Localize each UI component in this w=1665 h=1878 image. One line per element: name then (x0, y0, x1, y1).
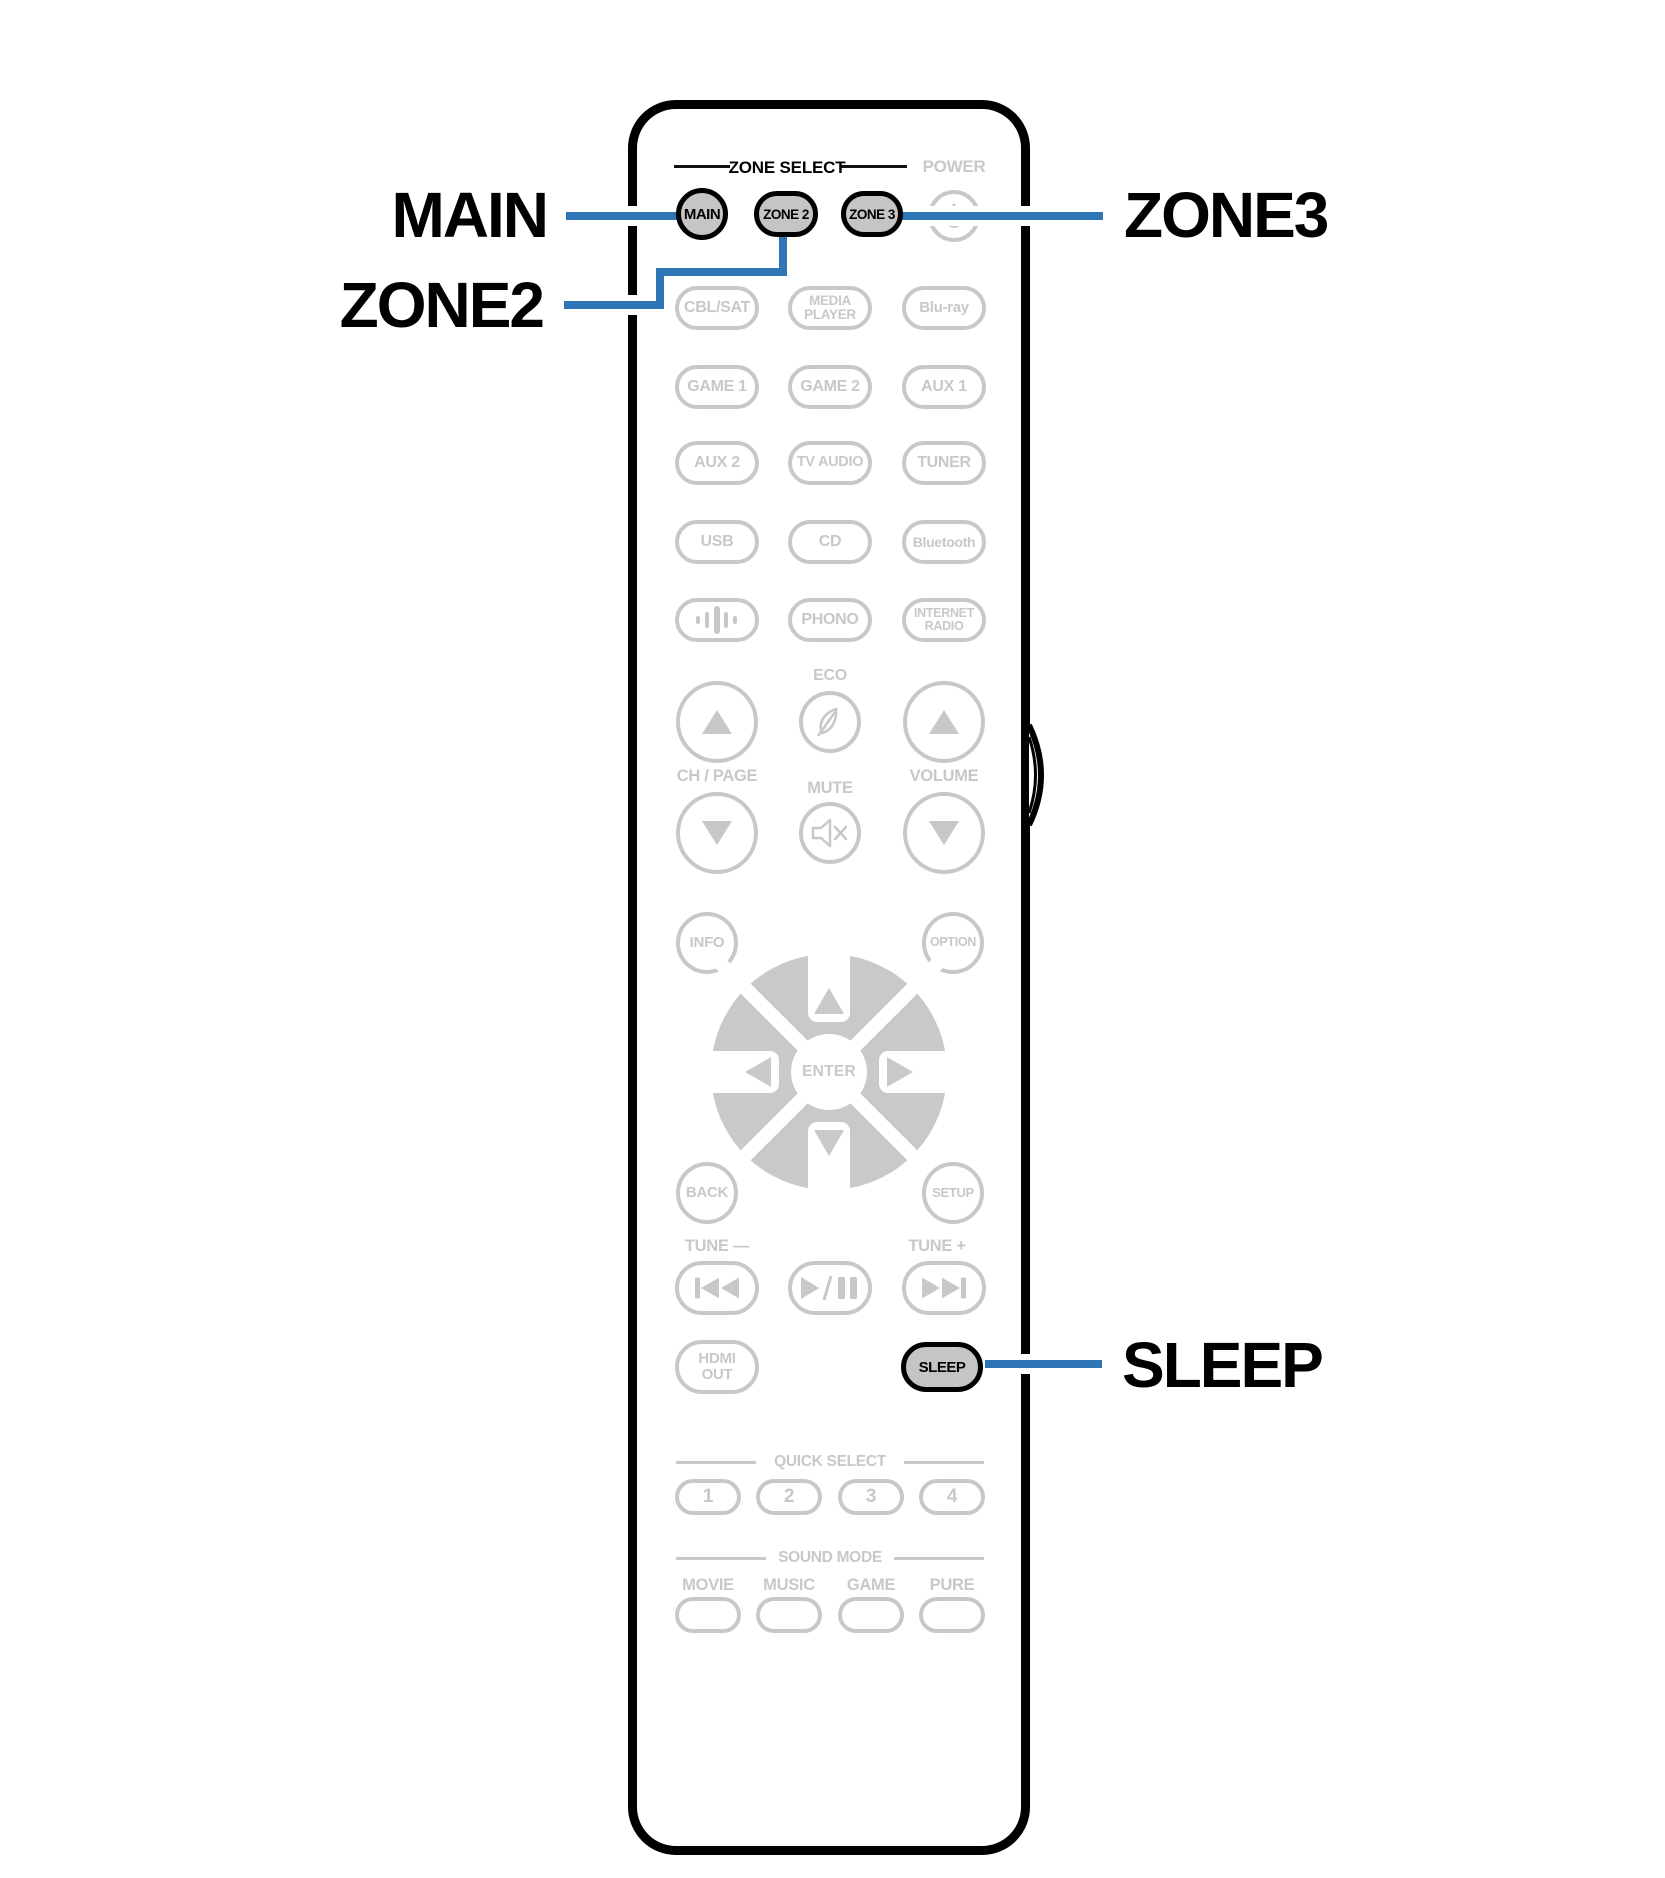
source-button-phono[interactable]: PHONO (788, 598, 872, 642)
power-label: POWER (914, 158, 994, 176)
skip-back-icon (694, 1276, 740, 1300)
source-button-usb[interactable]: USB (675, 520, 759, 564)
eco-leaf-icon (814, 705, 846, 739)
hdmi-out-label: HDMI OUT (694, 1351, 740, 1383)
quick-select-button-3[interactable]: 3 (838, 1479, 904, 1515)
up-arrow-icon (702, 710, 732, 734)
source-button-blu-ray[interactable]: Blu-ray (902, 286, 986, 330)
zone2-button[interactable]: ZONE 2 (754, 191, 818, 237)
zone3-button[interactable]: ZONE 3 (841, 191, 903, 237)
eco-label: ECO (800, 668, 860, 685)
volume-down-button[interactable] (903, 792, 985, 874)
quick-select-button-2[interactable]: 2 (756, 1479, 822, 1515)
sound-mode-dash-right (894, 1557, 984, 1560)
source-button-game2[interactable]: GAME 2 (788, 365, 872, 409)
callout-label-sleep: SLEEP (1122, 1333, 1442, 1397)
skip-back-button[interactable] (675, 1261, 759, 1315)
play-pause-button[interactable] (788, 1261, 872, 1315)
quick-select-dash-right (904, 1461, 984, 1464)
source-label: MEDIA PLAYER (799, 294, 861, 322)
zone-select-header: ZONE SELECT (707, 158, 867, 178)
mute-label: MUTE (795, 780, 865, 797)
ch-page-label: CH / PAGE (657, 768, 777, 785)
sleep-button[interactable]: SLEEP (901, 1342, 983, 1392)
sound-mode-button-pure[interactable] (919, 1597, 985, 1633)
quick-select-header: QUICK SELECT (755, 1454, 905, 1470)
callout-label-main: MAIN (297, 183, 547, 247)
source-label: INTERNET RADIO (909, 607, 979, 633)
callout-label-zone2: ZONE2 (293, 273, 543, 337)
power-button[interactable] (928, 190, 980, 242)
quick-select-button-4[interactable]: 4 (919, 1479, 985, 1515)
eco-button[interactable] (799, 691, 861, 753)
channel-up-button[interactable] (676, 681, 758, 763)
sound-bars-icon (694, 605, 740, 635)
power-icon (941, 202, 967, 230)
page: ZONE SELECT POWER MAIN ZONE 2 ZONE 3 CBL… (0, 0, 1665, 1878)
skip-forward-button[interactable] (902, 1261, 986, 1315)
source-button-aux2[interactable]: AUX 2 (675, 441, 759, 485)
sound-mode-label-music: MUSIC (749, 1577, 829, 1594)
sound-mode-header: SOUND MODE (755, 1550, 905, 1566)
tune-plus-label: TUNE + (877, 1238, 997, 1255)
source-button-cd[interactable]: CD (788, 520, 872, 564)
down-arrow-icon (929, 821, 959, 845)
sound-mode-button-music[interactable] (756, 1597, 822, 1633)
mute-speaker-icon (810, 818, 850, 848)
hdmi-out-button[interactable]: HDMI OUT (675, 1340, 759, 1394)
sound-mode-dash-left (676, 1557, 766, 1560)
quick-select-button-1[interactable]: 1 (675, 1479, 741, 1515)
sound-mode-button-movie[interactable] (675, 1597, 741, 1633)
quick-select-dash-left (676, 1461, 756, 1464)
channel-down-button[interactable] (676, 792, 758, 874)
volume-up-button[interactable] (903, 681, 985, 763)
down-arrow-icon (702, 821, 732, 845)
sound-mode-label-movie: MOVIE (668, 1577, 748, 1594)
tune-minus-label: TUNE — (657, 1238, 777, 1255)
zone-main-button[interactable]: MAIN (676, 188, 728, 240)
setup-button[interactable]: SETUP (922, 1162, 984, 1224)
enter-button[interactable]: ENTER (789, 1064, 869, 1080)
source-button-internet-radio[interactable]: INTERNET RADIO (902, 598, 986, 642)
sound-mode-label-pure: PURE (912, 1577, 992, 1594)
volume-label: VOLUME (884, 768, 1004, 785)
source-button-game1[interactable]: GAME 1 (675, 365, 759, 409)
zone-select-dash-right (841, 165, 907, 168)
sound-mode-button-game[interactable] (838, 1597, 904, 1633)
source-button-cbl-sat[interactable]: CBL/SAT (675, 286, 759, 330)
play-pause-icon (800, 1275, 860, 1301)
source-button-bluetooth[interactable]: Bluetooth (902, 520, 986, 564)
source-button-media-player[interactable]: MEDIA PLAYER (788, 286, 872, 330)
back-button[interactable]: BACK (676, 1162, 738, 1224)
source-button-tuner[interactable]: TUNER (902, 441, 986, 485)
up-arrow-icon (929, 710, 959, 734)
callout-label-zone3: ZONE3 (1124, 183, 1444, 247)
side-bump (1028, 722, 1054, 828)
sound-mode-label-game: GAME (831, 1577, 911, 1594)
mute-button[interactable] (799, 802, 861, 864)
skip-forward-icon (921, 1276, 967, 1300)
source-button-tv-audio[interactable]: TV AUDIO (788, 441, 872, 485)
source-button-aux1[interactable]: AUX 1 (902, 365, 986, 409)
source-button-sound-bars[interactable] (675, 598, 759, 642)
